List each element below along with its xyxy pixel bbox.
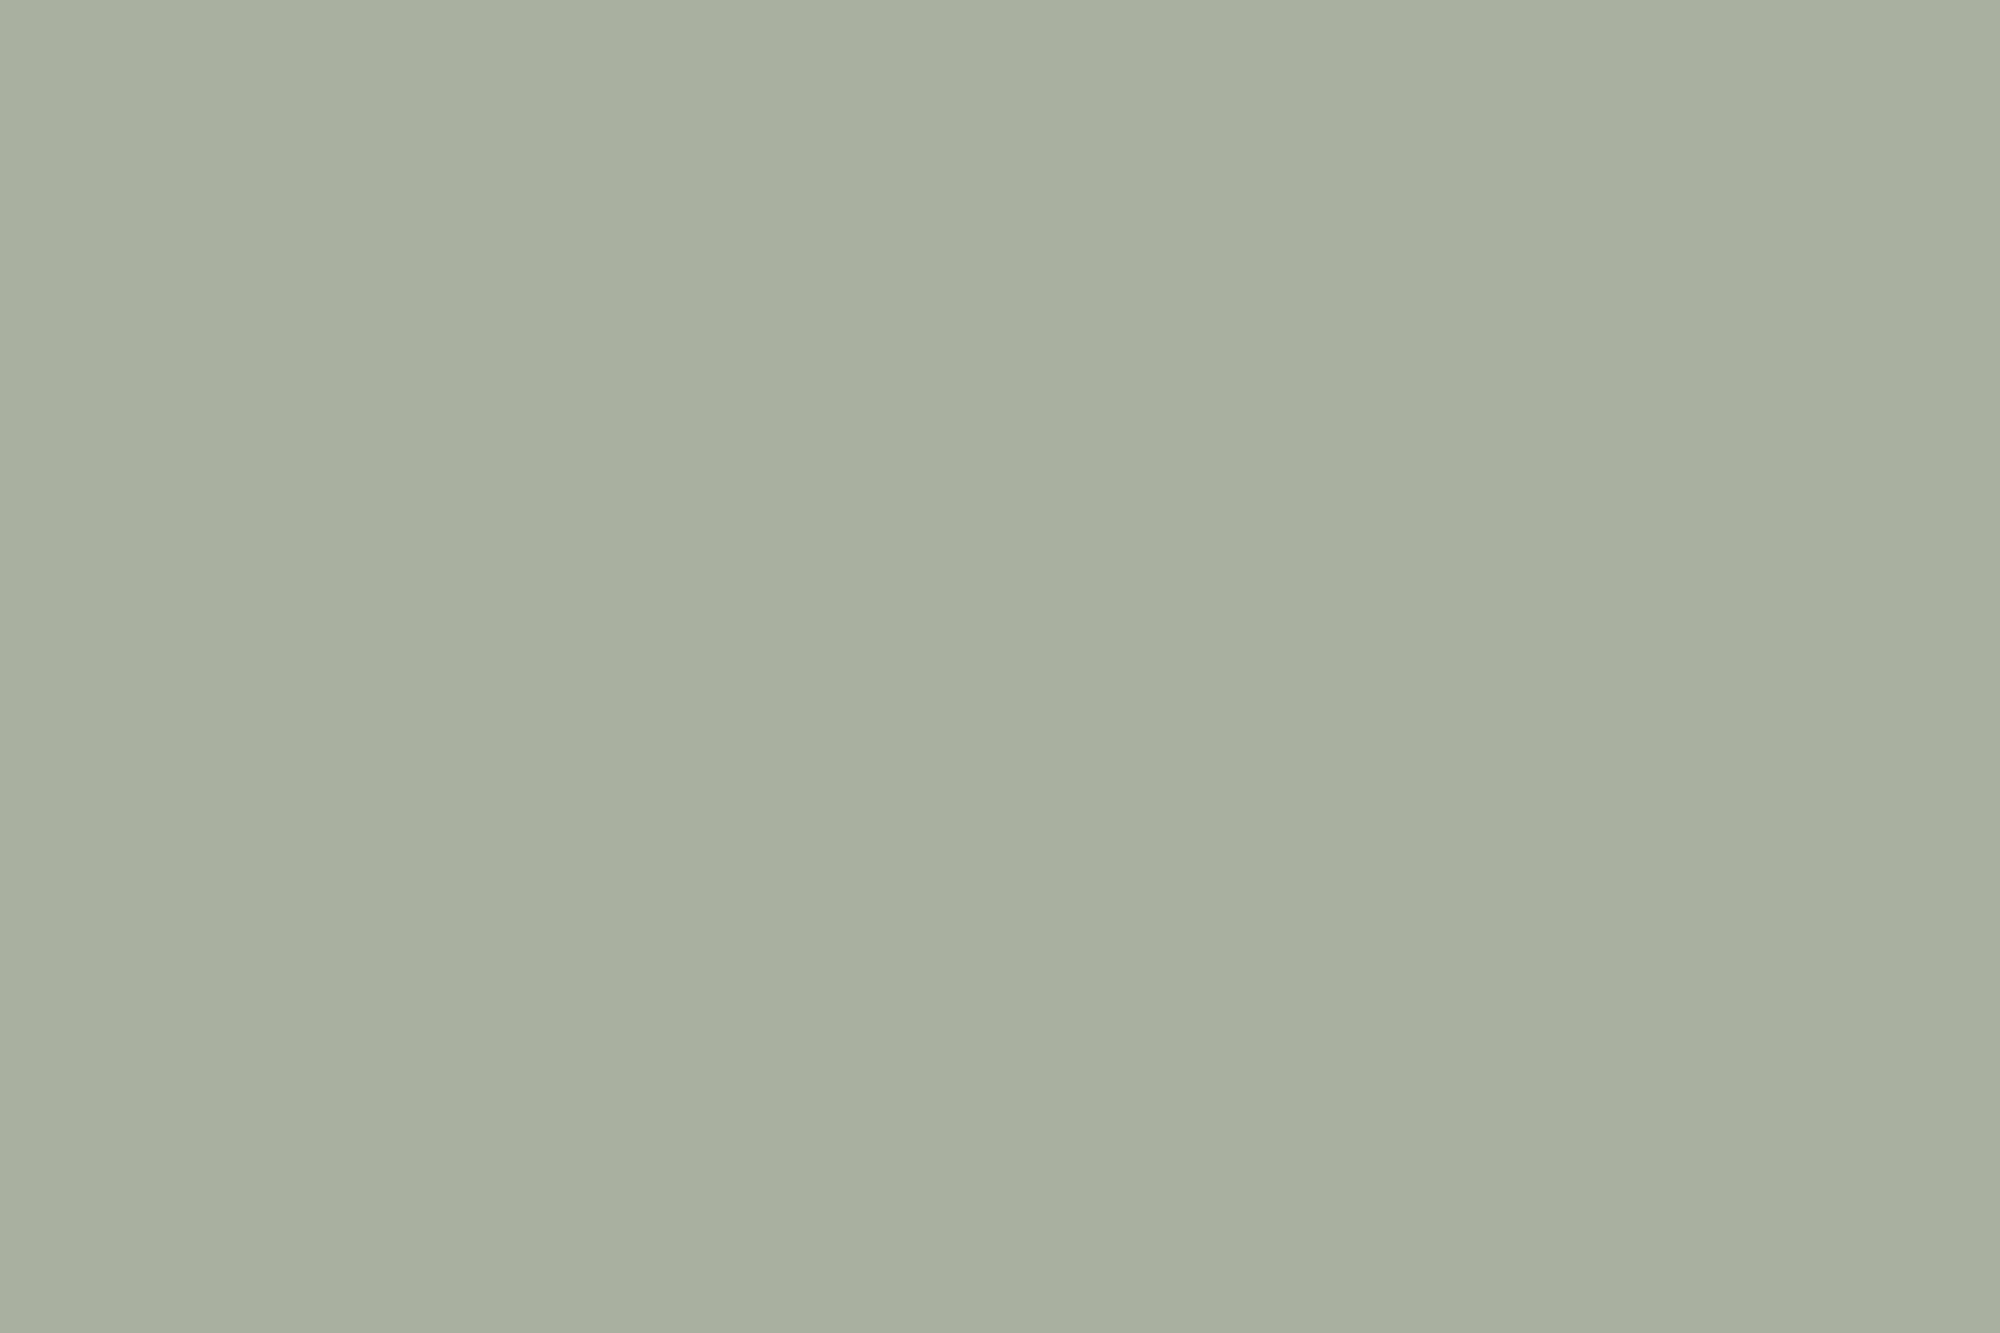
masterplan-aerial-map [0, 0, 2000, 1333]
map-canvas [0, 0, 2000, 1333]
